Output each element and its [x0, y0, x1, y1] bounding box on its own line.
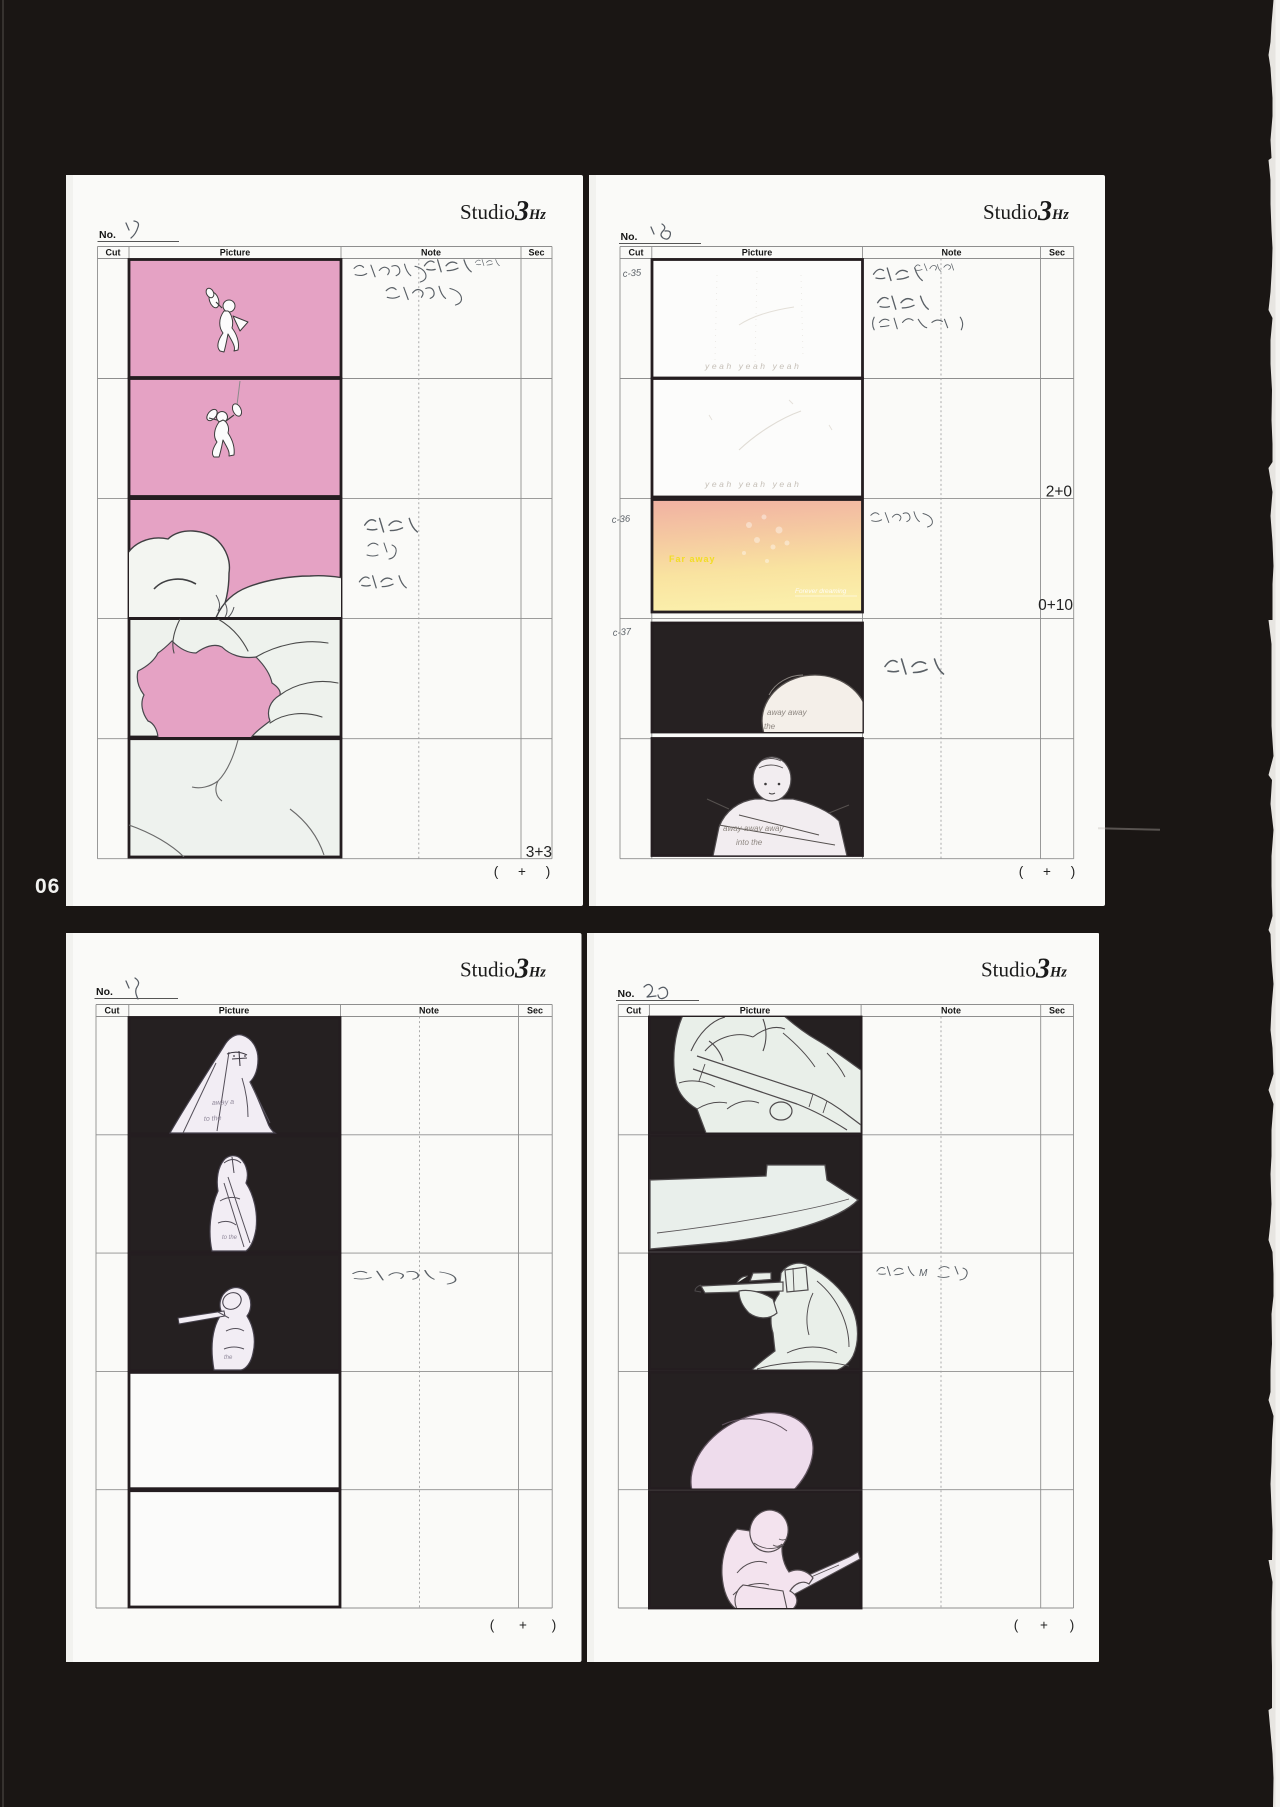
svg-text:into the: into the — [736, 838, 763, 847]
svg-text:the: the — [764, 722, 776, 731]
svg-text:Sec: Sec — [1048, 248, 1064, 258]
svg-text:Picture: Picture — [219, 1005, 250, 1015]
svg-text:(: ( — [490, 1617, 495, 1632]
svg-text:yeah yeah yeah: yeah yeah yeah — [704, 479, 801, 489]
svg-text:Hz: Hz — [528, 964, 546, 980]
svg-text:to the: to the — [222, 1235, 238, 1241]
svg-text:): ) — [546, 864, 551, 879]
svg-text:+: + — [1040, 1617, 1048, 1632]
svg-text:M: M — [919, 1268, 928, 1279]
svg-text:Hz: Hz — [528, 207, 546, 223]
svg-text:3: 3 — [1037, 196, 1052, 227]
svg-text:Sec: Sec — [527, 1005, 543, 1015]
svg-text:c-37: c-37 — [612, 626, 632, 639]
svg-text:Hz: Hz — [1051, 207, 1069, 223]
svg-text:): ) — [552, 1617, 557, 1632]
svg-text:3+3: 3+3 — [526, 844, 552, 861]
svg-text:Note: Note — [941, 248, 961, 258]
svg-text:(: ( — [494, 864, 499, 879]
svg-text:Studio: Studio — [460, 957, 515, 981]
svg-text:No.: No. — [99, 229, 116, 241]
svg-text:(: ( — [1013, 1617, 1018, 1632]
svg-text:3: 3 — [514, 196, 529, 227]
svg-text:+: + — [519, 1617, 527, 1632]
svg-text:Sec: Sec — [528, 248, 544, 258]
svg-text:the: the — [224, 1355, 233, 1361]
svg-text:2+0: 2+0 — [1045, 484, 1072, 501]
svg-text:to the: to the — [204, 1115, 222, 1123]
svg-text:Note: Note — [941, 1005, 961, 1015]
svg-text:Sec: Sec — [1048, 1005, 1064, 1015]
svg-text:Picture: Picture — [741, 248, 772, 258]
svg-text:Cut: Cut — [105, 1005, 120, 1015]
svg-text:away a: away a — [212, 1098, 235, 1106]
svg-text:Picture: Picture — [220, 248, 251, 258]
svg-text:): ) — [1070, 864, 1075, 879]
svg-text:Forever dreaming: Forever dreaming — [795, 588, 847, 595]
svg-text:Picture: Picture — [739, 1005, 770, 1015]
svg-text:No.: No. — [96, 986, 113, 998]
svg-text:Cut: Cut — [626, 1005, 641, 1015]
svg-text:3: 3 — [514, 953, 529, 984]
svg-text:Studio: Studio — [981, 957, 1036, 981]
svg-text:Note: Note — [421, 248, 441, 258]
svg-text:(: ( — [1018, 864, 1023, 879]
svg-text:No.: No. — [617, 988, 634, 1000]
svg-text:): ) — [1069, 1617, 1074, 1632]
svg-text:3: 3 — [1035, 953, 1050, 984]
svg-text:yeah yeah yeah: yeah yeah yeah — [704, 361, 801, 371]
svg-text:Far away: Far away — [669, 554, 716, 564]
svg-text:+: + — [1043, 864, 1051, 879]
svg-text:+: + — [518, 864, 526, 879]
svg-text:Studio: Studio — [460, 200, 515, 224]
svg-text:Note: Note — [419, 1005, 439, 1015]
svg-text:No.: No. — [620, 231, 637, 243]
svg-text:c-36: c-36 — [611, 513, 631, 526]
svg-text:Cut: Cut — [106, 248, 121, 258]
svg-text:away away away: away away away — [723, 824, 784, 833]
svg-text:Hz: Hz — [1049, 964, 1067, 980]
svg-text:Studio: Studio — [983, 200, 1038, 224]
svg-text:Cut: Cut — [628, 248, 643, 258]
svg-text:away away: away away — [767, 708, 808, 717]
svg-text:c-35: c-35 — [622, 267, 642, 280]
svg-text:0+10: 0+10 — [1038, 597, 1073, 614]
